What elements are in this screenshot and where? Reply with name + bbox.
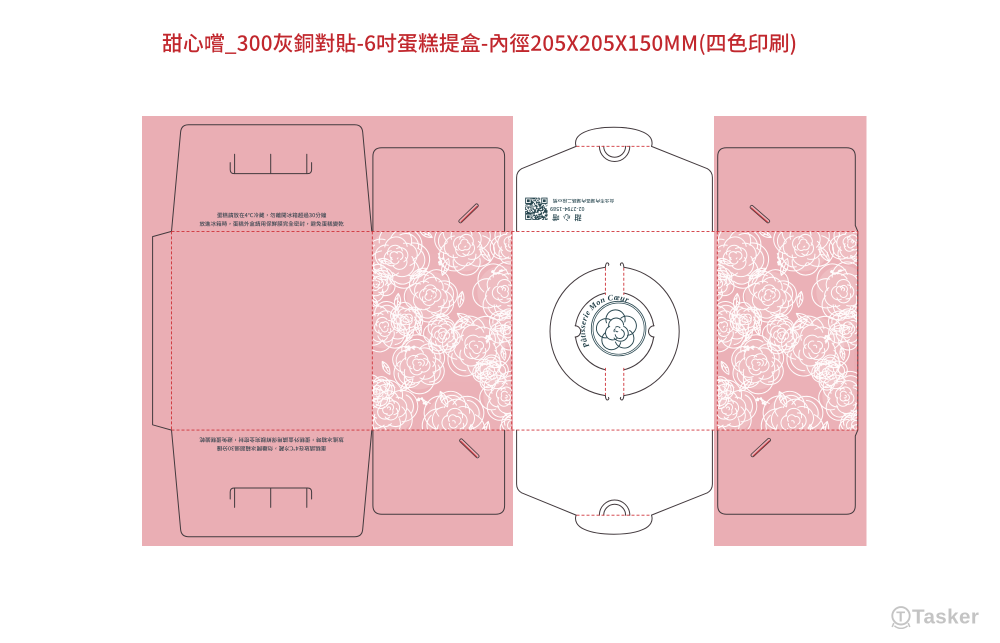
- svg-text:Tasker: Tasker: [912, 606, 979, 629]
- svg-text:T: T: [896, 610, 905, 626]
